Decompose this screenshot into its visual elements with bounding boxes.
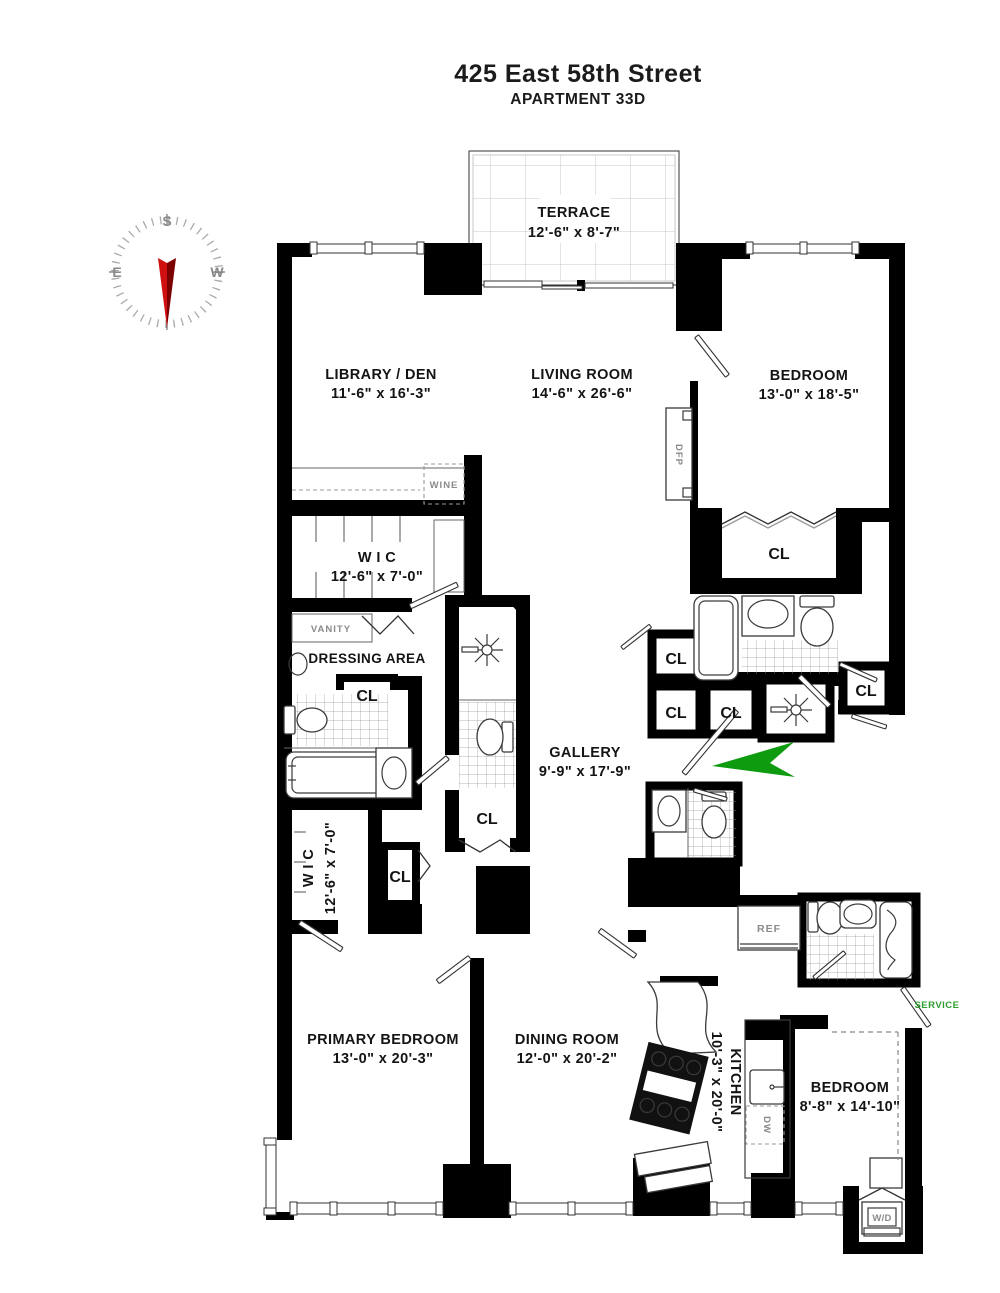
range-icon — [629, 1042, 709, 1135]
room-living-name: LIVING ROOM — [531, 367, 633, 383]
compass-needle-dark — [167, 258, 176, 328]
shelf-box — [870, 1158, 902, 1188]
toilet-icon — [477, 719, 503, 755]
room-kitchen-name: KITCHEN — [727, 1048, 743, 1115]
closet-shelf — [434, 520, 464, 592]
door-leaf — [851, 714, 886, 729]
room-bedroom-top-dims: 13'-0" x 18'-5" — [759, 387, 860, 403]
closet-label: CL — [389, 869, 411, 886]
room-primary-dims: 13'-0" x 20'-3" — [333, 1051, 434, 1067]
room-gallery-dims: 9'-9" x 17'-9" — [539, 764, 631, 780]
bathtub-icon — [694, 596, 738, 680]
sink-counter — [742, 596, 794, 636]
room-bedroom-small-name: BEDROOM — [811, 1080, 890, 1096]
ref-label: REF — [757, 923, 781, 935]
wd-label: W/D — [872, 1213, 891, 1224]
room-gallery-name: GALLERY — [549, 745, 621, 761]
room-terrace-name: TERRACE — [538, 205, 611, 221]
curved-island — [648, 982, 716, 1054]
closet-label: CL — [768, 546, 790, 563]
toilet-icon — [702, 806, 726, 838]
room-library-dims: 11'-6" x 16'-3" — [331, 386, 431, 402]
toilet-icon — [801, 608, 833, 646]
compass-east: E — [112, 264, 121, 280]
compass-needle — [158, 258, 167, 328]
room-wic-lower-dims: 12'-6" x 7'-0" — [323, 822, 339, 914]
closet-label: CL — [476, 811, 498, 828]
closet-label: CL — [720, 705, 742, 722]
room-living-dims: 14'-6" x 26'-6" — [532, 386, 633, 402]
room-dressing-name: DRESSING AREA — [308, 651, 425, 666]
toilet-icon — [297, 708, 327, 732]
room-kitchen-dims: 10'-3" x 20'-0" — [708, 1032, 724, 1133]
door-leaf — [695, 335, 730, 377]
compass-south: S — [162, 213, 171, 229]
floorplan-drawing: S E W 425 East 58th Street APARTMENT 33D… — [0, 0, 1000, 1293]
bedroom-closet — [722, 512, 836, 528]
room-dining-dims: 12'-0" x 20'-2" — [517, 1051, 618, 1067]
dashed-soffit-line — [832, 1032, 898, 1160]
compass-rose: S E W — [109, 213, 225, 330]
dfp-label: DFP — [673, 444, 684, 466]
room-primary-name: PRIMARY BEDROOM — [307, 1032, 459, 1048]
closet-label: CL — [855, 683, 877, 700]
toilet-tank — [800, 596, 834, 607]
entry-arrow-icon — [712, 742, 795, 777]
service-bathroom — [806, 900, 912, 980]
toilet-tank — [284, 706, 295, 734]
compass-west: W — [210, 264, 224, 280]
dw-label: DW — [761, 1116, 772, 1134]
room-wic-upper-dims: 12'-6" x 7'-0" — [331, 569, 423, 585]
bathtub-icon — [880, 902, 912, 978]
room-library-name: LIBRARY / DEN — [325, 367, 437, 383]
bathtub-icon — [286, 752, 388, 798]
floorplan-page: S E W 425 East 58th Street APARTMENT 33D… — [0, 0, 1000, 1293]
closet-label: CL — [665, 651, 687, 668]
room-dining-name: DINING ROOM — [515, 1032, 619, 1048]
room-terrace-dims: 12'-6" x 8'-7" — [528, 225, 620, 241]
door-leaf — [436, 956, 471, 984]
closet-label: CL — [665, 705, 687, 722]
door-leaf — [621, 624, 652, 649]
vanity-label: VANITY — [311, 624, 351, 635]
room-wic-upper-name: W I C — [358, 550, 396, 566]
room-bedroom-top-name: BEDROOM — [770, 368, 849, 384]
service-label: SERVICE — [914, 1000, 959, 1011]
closet-label: CL — [356, 688, 378, 705]
mirror-doors — [362, 616, 414, 634]
room-wic-lower-name: W I C — [301, 849, 317, 887]
toilet-icon — [817, 902, 843, 934]
room-bedroom-small-dims: 8'-8" x 14'-10" — [800, 1099, 901, 1115]
laundry-closet — [859, 1158, 905, 1242]
wine-label: WINE — [430, 480, 459, 491]
page-subtitle: APARTMENT 33D — [510, 91, 645, 108]
page-title: 425 East 58th Street — [454, 60, 702, 88]
bifold-door — [459, 840, 516, 852]
